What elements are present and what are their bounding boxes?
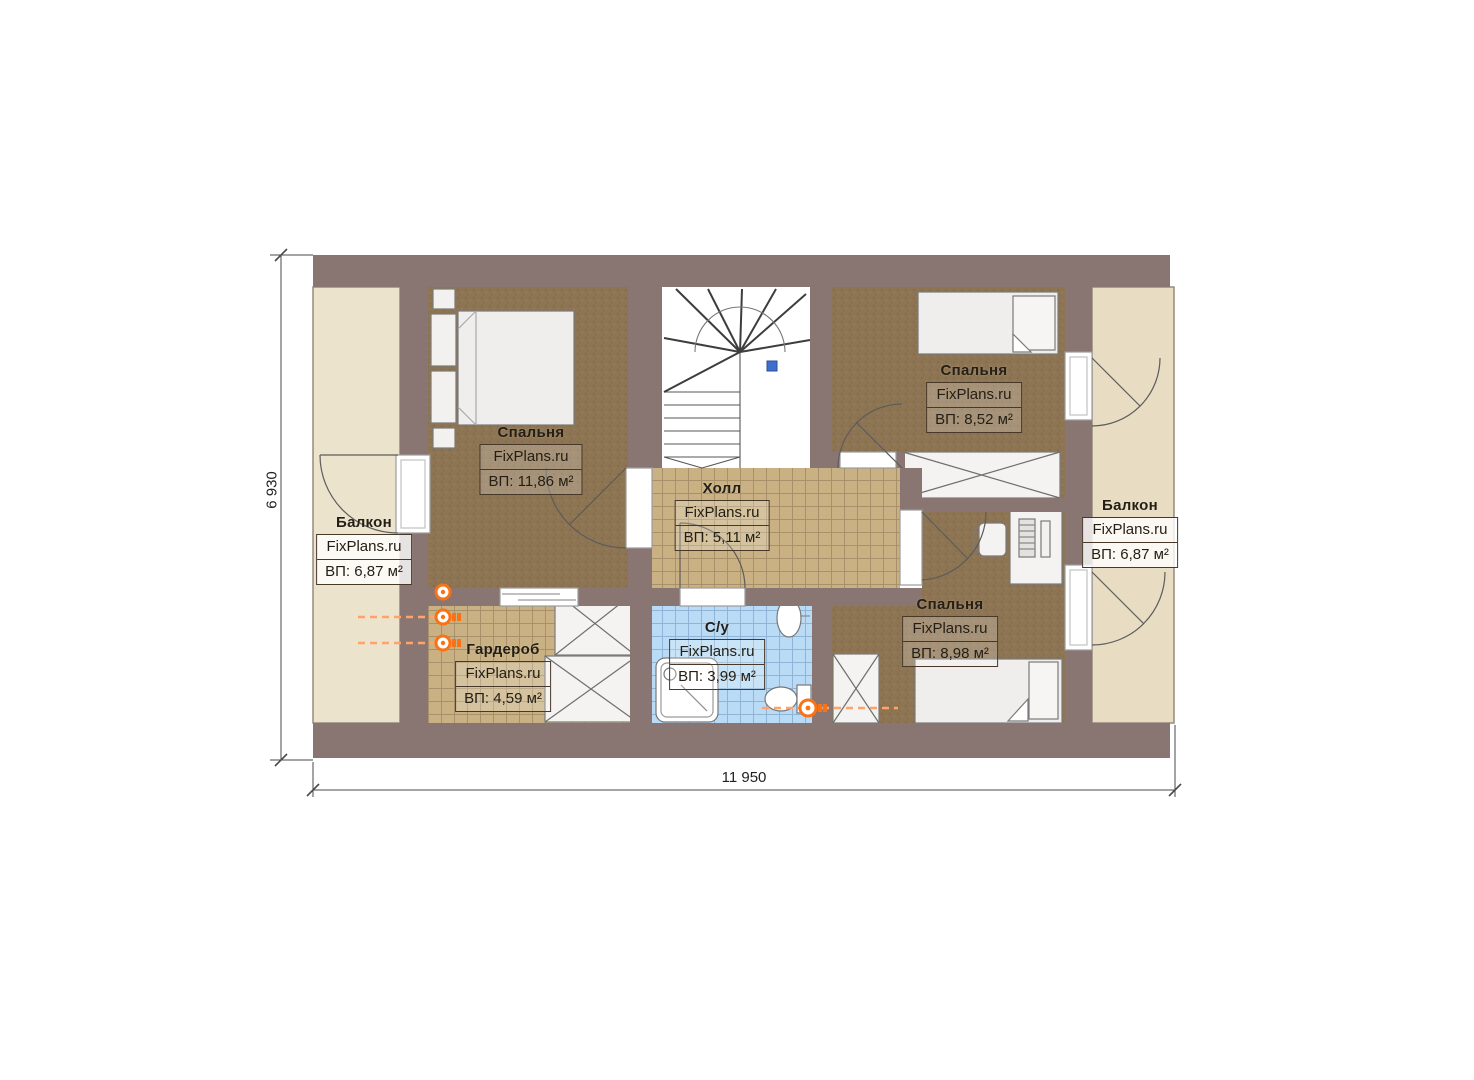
cabinet	[433, 428, 455, 448]
room-area: ВП: 8,98 м²	[903, 642, 997, 666]
wardrobe-sliding-door	[500, 588, 578, 606]
room-name: Спальня	[498, 424, 565, 441]
watermark-site: FixPlans.ru	[317, 535, 411, 560]
room-label-balcony-left: Балкон FixPlans.ru ВП: 6,87 м²	[316, 514, 412, 585]
balcony-right-door-lower	[1065, 565, 1092, 650]
watermark-box: FixPlans.ru ВП: 8,98 м²	[902, 616, 998, 667]
room-area: ВП: 6,87 м²	[1083, 543, 1177, 567]
nightstand	[431, 371, 456, 423]
room-area: ВП: 8,52 м²	[927, 408, 1021, 432]
room-label-balcony-right: Балкон FixPlans.ru ВП: 6,87 м²	[1082, 497, 1178, 568]
room-label-hall: Холл FixPlans.ru ВП: 5,11 м²	[675, 480, 770, 551]
watermark-site: FixPlans.ru	[927, 383, 1021, 408]
room-name: Балкон	[336, 514, 392, 531]
watermark-site: FixPlans.ru	[676, 501, 769, 526]
room-name: С/у	[705, 619, 729, 636]
pillow	[1029, 662, 1058, 719]
wall-top	[313, 255, 1170, 287]
room-area: ВП: 6,87 м²	[317, 560, 411, 584]
watermark-box: FixPlans.ru ВП: 5,11 м²	[675, 500, 770, 551]
watermark-site: FixPlans.ru	[1083, 518, 1177, 543]
watermark-box: FixPlans.ru ВП: 6,87 м²	[316, 534, 412, 585]
bedroom-bottom-right-door	[900, 510, 922, 585]
room-name: Холл	[703, 480, 742, 497]
watermark-box: FixPlans.ru ВП: 8,52 м²	[926, 382, 1022, 433]
watermark-site: FixPlans.ru	[903, 617, 997, 642]
dimension-height-label: 6 930	[264, 471, 281, 509]
balcony-right-door-upper	[1065, 352, 1092, 420]
room-area: ВП: 11,86 м²	[480, 470, 581, 494]
desk-chair	[979, 523, 1006, 556]
room-label-bathroom: С/у FixPlans.ru ВП: 3,99 м²	[669, 619, 765, 690]
stairs-marker-icon	[767, 361, 777, 371]
room-name: Спальня	[917, 596, 984, 613]
stairwell-floor	[662, 287, 810, 468]
desk	[1010, 504, 1062, 584]
balcony-left-floor	[313, 287, 400, 723]
room-area: ВП: 3,99 м²	[670, 665, 764, 689]
watermark-site: FixPlans.ru	[480, 445, 581, 470]
dimension-width-label: 11 950	[722, 769, 767, 786]
room-area: ВП: 5,11 м²	[676, 526, 769, 550]
keyboard	[1041, 521, 1050, 557]
watermark-box: FixPlans.ru ВП: 3,99 м²	[669, 639, 765, 690]
watermark-site: FixPlans.ru	[670, 640, 764, 665]
bedroom-left-door	[626, 468, 652, 548]
room-name: Гардероб	[466, 641, 539, 658]
wall-bottom	[313, 723, 1170, 758]
room-label-bedroom-top-right: Спальня FixPlans.ru ВП: 8,52 м²	[926, 362, 1022, 433]
watermark-box: FixPlans.ru ВП: 6,87 м²	[1082, 517, 1178, 568]
room-name: Балкон	[1102, 497, 1158, 514]
room-label-bedroom-bottom-right: Спальня FixPlans.ru ВП: 8,98 м²	[902, 596, 998, 667]
room-area: ВП: 4,59 м²	[456, 687, 550, 711]
cabinet	[433, 289, 455, 309]
floor-plan-canvas: Спальня FixPlans.ru ВП: 11,86 м² Холл Fi…	[0, 0, 1474, 1080]
nightstand	[431, 314, 456, 366]
watermark-box: FixPlans.ru ВП: 4,59 м²	[455, 661, 551, 712]
watermark-box: FixPlans.ru ВП: 11,86 м²	[479, 444, 582, 495]
room-label-bedroom-left: Спальня FixPlans.ru ВП: 11,86 м²	[479, 424, 582, 495]
watermark-site: FixPlans.ru	[456, 662, 550, 687]
room-name: Спальня	[941, 362, 1008, 379]
bathroom-door	[680, 588, 745, 606]
room-label-wardrobe: Гардероб FixPlans.ru ВП: 4,59 м²	[455, 641, 551, 712]
